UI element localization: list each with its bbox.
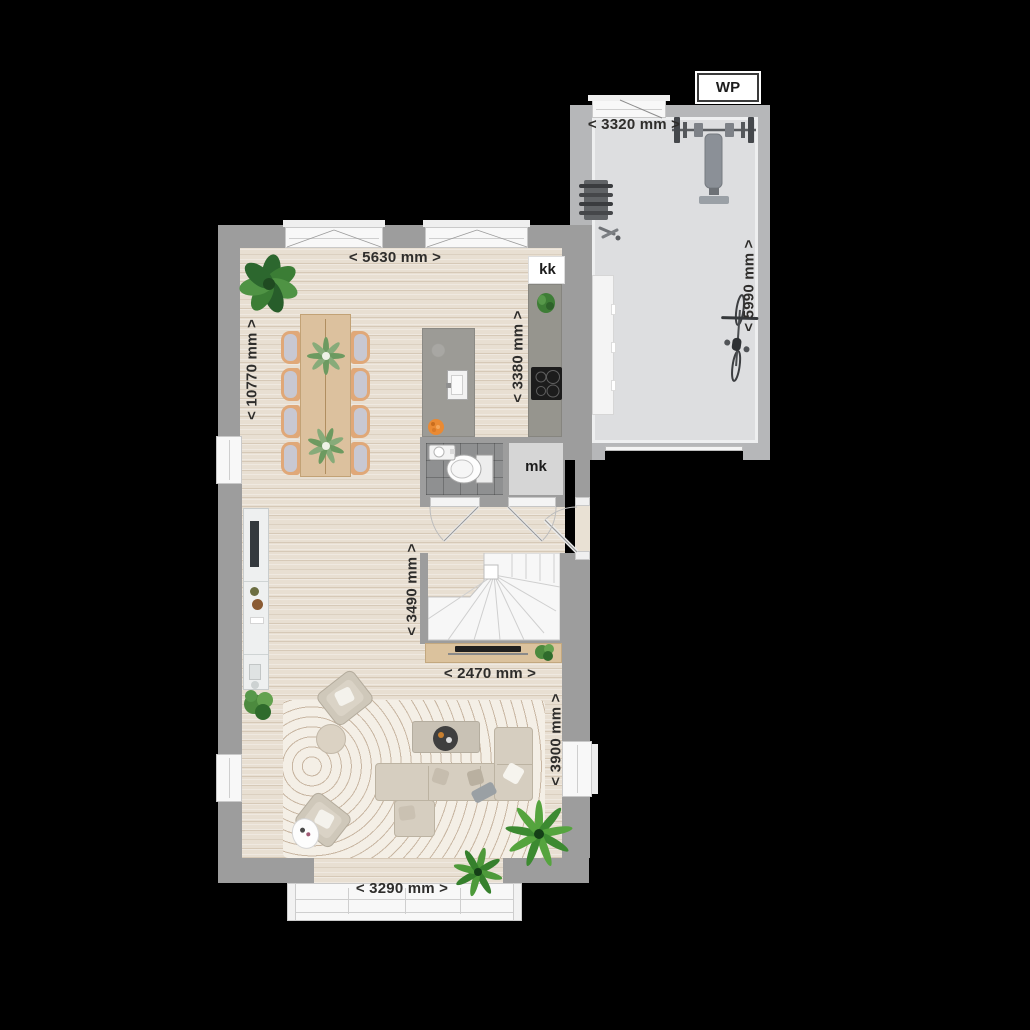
window-living-right [562, 741, 592, 797]
bay-window-jamb-left [287, 883, 296, 921]
wall-bottom-left [240, 858, 314, 883]
dining-chair [281, 368, 300, 401]
fruit-bowl [428, 419, 444, 435]
tv [455, 646, 521, 652]
sofa-pillow [398, 805, 416, 821]
dining-chair [281, 442, 300, 475]
stairs [428, 553, 560, 641]
kk-label: kk [529, 261, 566, 278]
coffee-table [412, 721, 480, 753]
tray [433, 726, 458, 751]
window-sill-top-1 [283, 220, 385, 227]
window-opening-lines [285, 227, 530, 249]
floor-plan: WP < 3320 mm > < 5990 mm > [0, 0, 1030, 1030]
mk-label: mk [509, 458, 563, 475]
dim-garage-depth: < 5990 mm > [741, 206, 758, 366]
dim-stairs: < 2470 mm > [410, 665, 570, 682]
dim-bay: < 3290 mm > [322, 880, 482, 897]
dumbbell-rack [581, 180, 611, 220]
window-left-1 [216, 436, 242, 484]
dim-hall: < 3490 mm > [404, 510, 421, 670]
loose-weights [600, 228, 621, 241]
dining-chair [351, 331, 370, 364]
garage-door-outside [605, 451, 743, 460]
dim-garage-width: < 3320 mm > [554, 116, 714, 133]
cooktop [531, 367, 562, 400]
pouf [316, 724, 346, 754]
sideboard [243, 508, 269, 690]
wall-left-lower [218, 802, 242, 883]
garage-cabinet [592, 275, 614, 415]
window-living-sill [592, 744, 598, 794]
heat-pump-box: WP [697, 73, 759, 102]
kk-box: kk [528, 256, 565, 284]
heat-pump-label: WP [699, 75, 757, 100]
dim-living: < 3900 mm > [548, 660, 565, 820]
dining-chair [281, 331, 300, 364]
window-sill-top-2 [423, 220, 530, 227]
door-swings [420, 495, 580, 555]
dining-chair [351, 368, 370, 401]
counter-plant [534, 290, 558, 316]
wall-shared-garage [562, 225, 592, 460]
bay-window-jamb-right [513, 883, 522, 921]
dining-chair [351, 442, 370, 475]
table-plant [303, 423, 349, 469]
dim-kitchen: < 3380 mm > [510, 277, 527, 437]
dining-chair [351, 405, 370, 438]
island-sink [447, 370, 468, 400]
wall-right-stairs [560, 553, 590, 643]
wall-stairwell-left [420, 553, 428, 643]
window-left-2 [216, 754, 242, 802]
toilet-fixtures [426, 443, 505, 497]
tv-stand [448, 653, 528, 655]
table-plant [303, 333, 349, 379]
sideboard-plant [239, 686, 281, 726]
kitchen-island [422, 328, 475, 437]
dim-house-depth: < 10770 mm > [244, 290, 261, 450]
dim-house-width: < 5630 mm > [315, 249, 475, 266]
dining-chair [281, 405, 300, 438]
